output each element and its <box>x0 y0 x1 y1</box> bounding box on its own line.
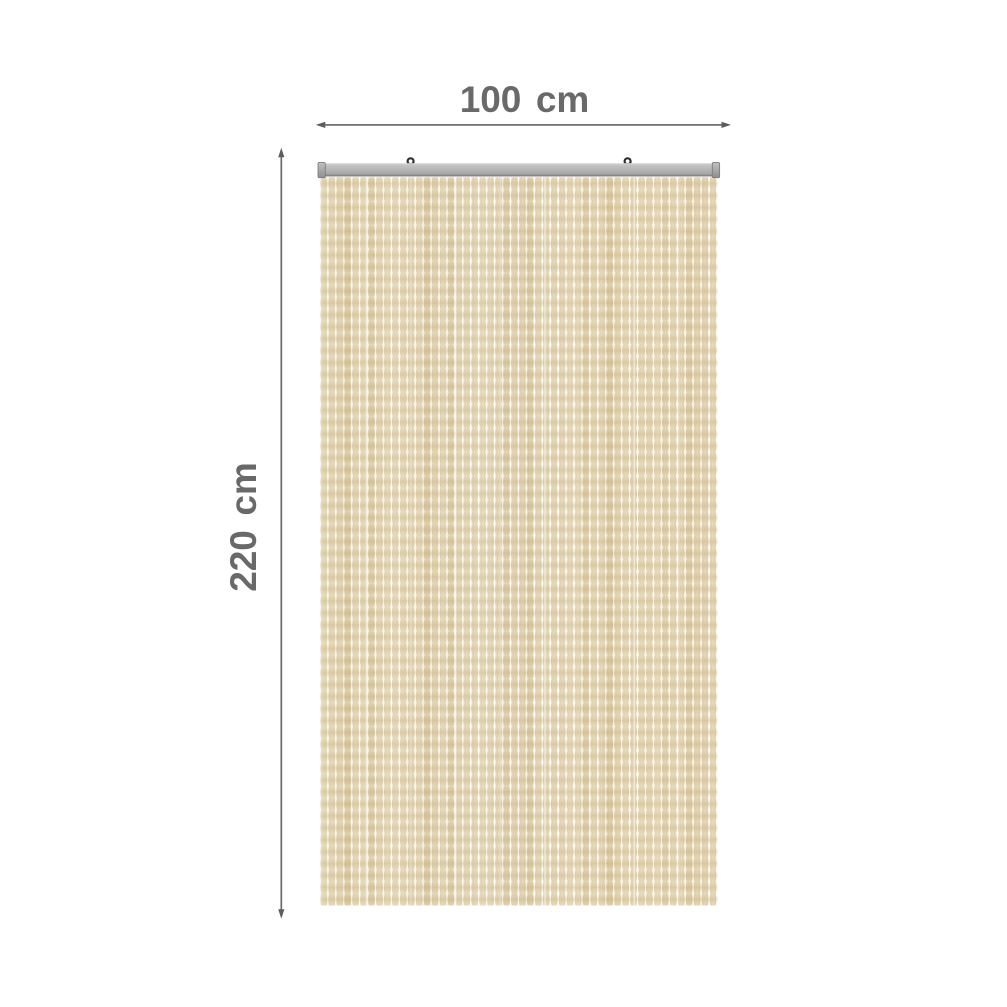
svg-text:100 cm: 100 cm <box>460 79 589 120</box>
svg-text:220 cm: 220 cm <box>223 462 264 591</box>
